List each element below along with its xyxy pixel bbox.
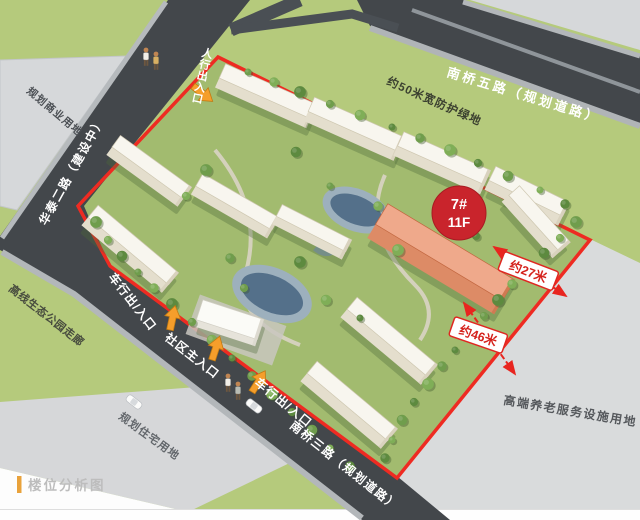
- building-badge: 7# 11F: [432, 186, 486, 240]
- badge-floors-text: 11F: [448, 215, 471, 230]
- caption-accent-bar: [17, 476, 22, 493]
- badge-number-text: 7#: [451, 197, 467, 213]
- site-plan-canvas: 南桥五路（规划道路） 约50米宽防护绿地 华泰二路（建设中） 规划商业用地 高线…: [0, 0, 640, 520]
- white-margin-bottom: [0, 509, 640, 520]
- caption-text: 楼位分析图: [28, 477, 106, 493]
- site-plan-figure: 南桥五路（规划道路） 约50米宽防护绿地 华泰二路（建设中） 规划商业用地 高线…: [0, 0, 640, 520]
- caption-block: 楼位分析图: [17, 476, 106, 493]
